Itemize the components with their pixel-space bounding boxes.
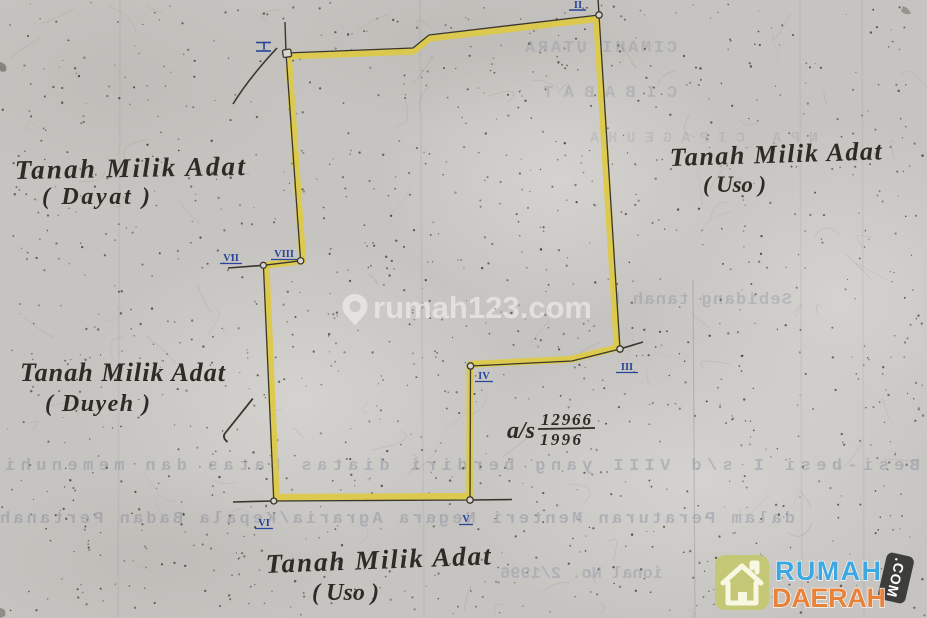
svg-text:VIII: VIII <box>274 249 294 260</box>
svg-text:rumah123.com: rumah123.com <box>373 290 592 325</box>
svg-text:a/s: a/s <box>507 418 535 444</box>
svg-text:V: V <box>462 514 470 525</box>
svg-text:12966: 12966 <box>541 410 592 429</box>
svg-text:DAERAH: DAERAH <box>772 583 886 613</box>
svg-text:ional No. 2/1996: ional No. 2/1996 <box>500 565 663 584</box>
svg-text:IV: IV <box>478 371 490 382</box>
svg-text:( Uso ): ( Uso ) <box>703 172 766 197</box>
svg-text:( Dayat ): ( Dayat ) <box>42 184 150 210</box>
svg-text:RUMAH: RUMAH <box>775 556 881 586</box>
svg-text:Sebidang tanah k: Sebidang tanah k <box>610 291 792 310</box>
svg-text:VII: VII <box>223 253 239 264</box>
svg-text:Tanah Milik Adat: Tanah Milik Adat <box>20 358 226 387</box>
svg-text:III: III <box>621 362 633 373</box>
svg-text:1996: 1996 <box>540 430 582 449</box>
svg-text:( Uso ): ( Uso ) <box>312 580 379 606</box>
svg-text:VI: VI <box>258 518 270 529</box>
